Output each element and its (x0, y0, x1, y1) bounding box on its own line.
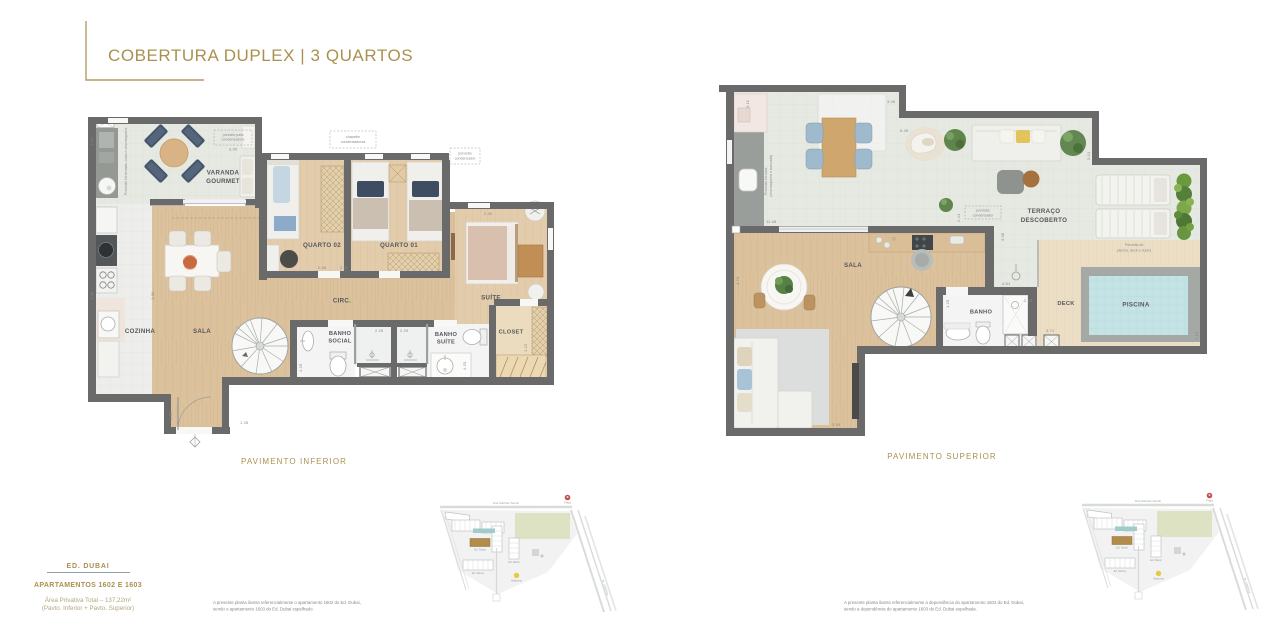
svg-text:previsão: previsão (976, 209, 990, 213)
svg-text:(churrasqueira e bancada): (churrasqueira e bancada) (769, 155, 773, 197)
svg-text:Previsão kit: Previsão kit (1125, 243, 1144, 247)
svg-text:piscina, deck e ducha: piscina, deck e ducha (1117, 249, 1152, 253)
svg-text:3.06: 3.06 (887, 99, 895, 104)
svg-text:SALA: SALA (844, 262, 862, 269)
svg-text:GOURMET: GOURMET (206, 178, 240, 185)
svg-text:2.29: 2.29 (1024, 298, 1032, 303)
svg-text:2.05: 2.05 (318, 265, 326, 270)
svg-text:condensador: condensador (455, 157, 477, 161)
svg-text:A presente planta ilustra refe: A presente planta ilustra referencialmen… (844, 600, 1024, 605)
svg-text:previsão: previsão (458, 152, 472, 156)
svg-text:4.05: 4.05 (90, 292, 95, 300)
svg-text:CLOSET: CLOSET (499, 330, 524, 336)
svg-text:SUÍTE: SUÍTE (437, 338, 455, 346)
svg-text:4.73: 4.73 (735, 277, 740, 285)
svg-text:3.06: 3.06 (1000, 233, 1005, 241)
svg-text:2.40: 2.40 (484, 211, 493, 216)
svg-text:Área Privativa Total – 137,22m: Área Privativa Total – 137,22m² (45, 597, 131, 604)
svg-text:SOCIAL: SOCIAL (328, 339, 352, 345)
svg-text:previsto para: previsto para (223, 133, 244, 137)
svg-text:1.29: 1.29 (298, 364, 303, 372)
svg-text:6.45: 6.45 (900, 128, 908, 133)
svg-text:DECK: DECK (1057, 301, 1075, 307)
svg-text:3.11: 3.11 (745, 100, 750, 108)
svg-text:condensadoras: condensadoras (341, 140, 366, 144)
svg-text:3.95: 3.95 (229, 147, 237, 152)
svg-text:ED. DUBAI: ED. DUBAI (67, 563, 110, 570)
svg-text:SALA: SALA (193, 328, 211, 335)
svg-text:BANHO: BANHO (970, 310, 993, 316)
svg-text:QUARTO 02: QUARTO 02 (303, 242, 341, 249)
svg-text:BANHO: BANHO (435, 332, 458, 338)
svg-text:COBERTURA DUPLEX | 3 QUARTOS: COBERTURA DUPLEX | 3 QUARTOS (108, 46, 413, 65)
svg-text:1.35: 1.35 (240, 420, 248, 425)
svg-text:COZINHA: COZINHA (125, 328, 156, 335)
svg-text:11.08: 11.08 (766, 219, 776, 224)
svg-text:sendo a dependência do apartam: sendo a dependência do apartamento 1603 … (844, 607, 977, 612)
svg-text:1.29: 1.29 (945, 300, 950, 308)
svg-text:PAVIMENTO INFERIOR: PAVIMENTO INFERIOR (241, 457, 347, 466)
svg-text:4.33: 4.33 (462, 362, 467, 370)
svg-text:3.71: 3.71 (1046, 328, 1054, 333)
svg-text:PISCINA: PISCINA (1122, 302, 1149, 309)
svg-text:TERRAÇO: TERRAÇO (1028, 208, 1061, 215)
svg-text:1.20: 1.20 (523, 343, 528, 352)
svg-text:SUÍTE: SUÍTE (481, 294, 501, 302)
svg-text:2.41: 2.41 (956, 214, 961, 222)
svg-text:1.50: 1.50 (150, 291, 155, 300)
svg-text:2.29: 2.29 (400, 328, 408, 333)
svg-text:PAVIMENTO SUPERIOR: PAVIMENTO SUPERIOR (887, 452, 997, 461)
svg-text:CIRC.: CIRC. (333, 298, 351, 305)
svg-text:Previsão kit cuba: Previsão kit cuba (764, 168, 768, 195)
svg-text:3.95: 3.95 (832, 422, 840, 427)
svg-text:4.18: 4.18 (1194, 332, 1199, 340)
svg-text:APARTAMENTOS 1602 E 1603: APARTAMENTOS 1602 E 1603 (34, 582, 142, 589)
svg-text:chapelim: chapelim (346, 135, 360, 139)
svg-text:4.81: 4.81 (1002, 281, 1010, 286)
svg-text:BANHO: BANHO (329, 331, 352, 337)
svg-text:DESCOBERTO: DESCOBERTO (1021, 217, 1068, 224)
svg-text:1.70: 1.70 (90, 137, 95, 146)
svg-text:condensador: condensador (973, 214, 995, 218)
svg-text:Previsão kit tomada, cuba e ch: Previsão kit tomada, cuba e churrasqueir… (124, 128, 128, 195)
svg-text:QUARTO 01: QUARTO 01 (380, 242, 418, 249)
svg-text:A presente planta ilustra refe: A presente planta ilustra referencialmen… (213, 600, 361, 605)
svg-text:sendo o apartamento 1603 do Ed: sendo o apartamento 1603 do Ed. Dubai es… (213, 607, 314, 612)
svg-text:(Pavto. Inferior + Pavto. Supe: (Pavto. Inferior + Pavto. Superior) (42, 605, 134, 612)
svg-text:1.50: 1.50 (168, 411, 173, 420)
svg-text:2.30: 2.30 (340, 265, 349, 270)
svg-text:VARANDA: VARANDA (207, 170, 240, 177)
svg-text:condensadora: condensadora (222, 138, 245, 142)
svg-text:2.25: 2.25 (375, 328, 383, 333)
svg-text:5.01: 5.01 (1086, 152, 1091, 160)
